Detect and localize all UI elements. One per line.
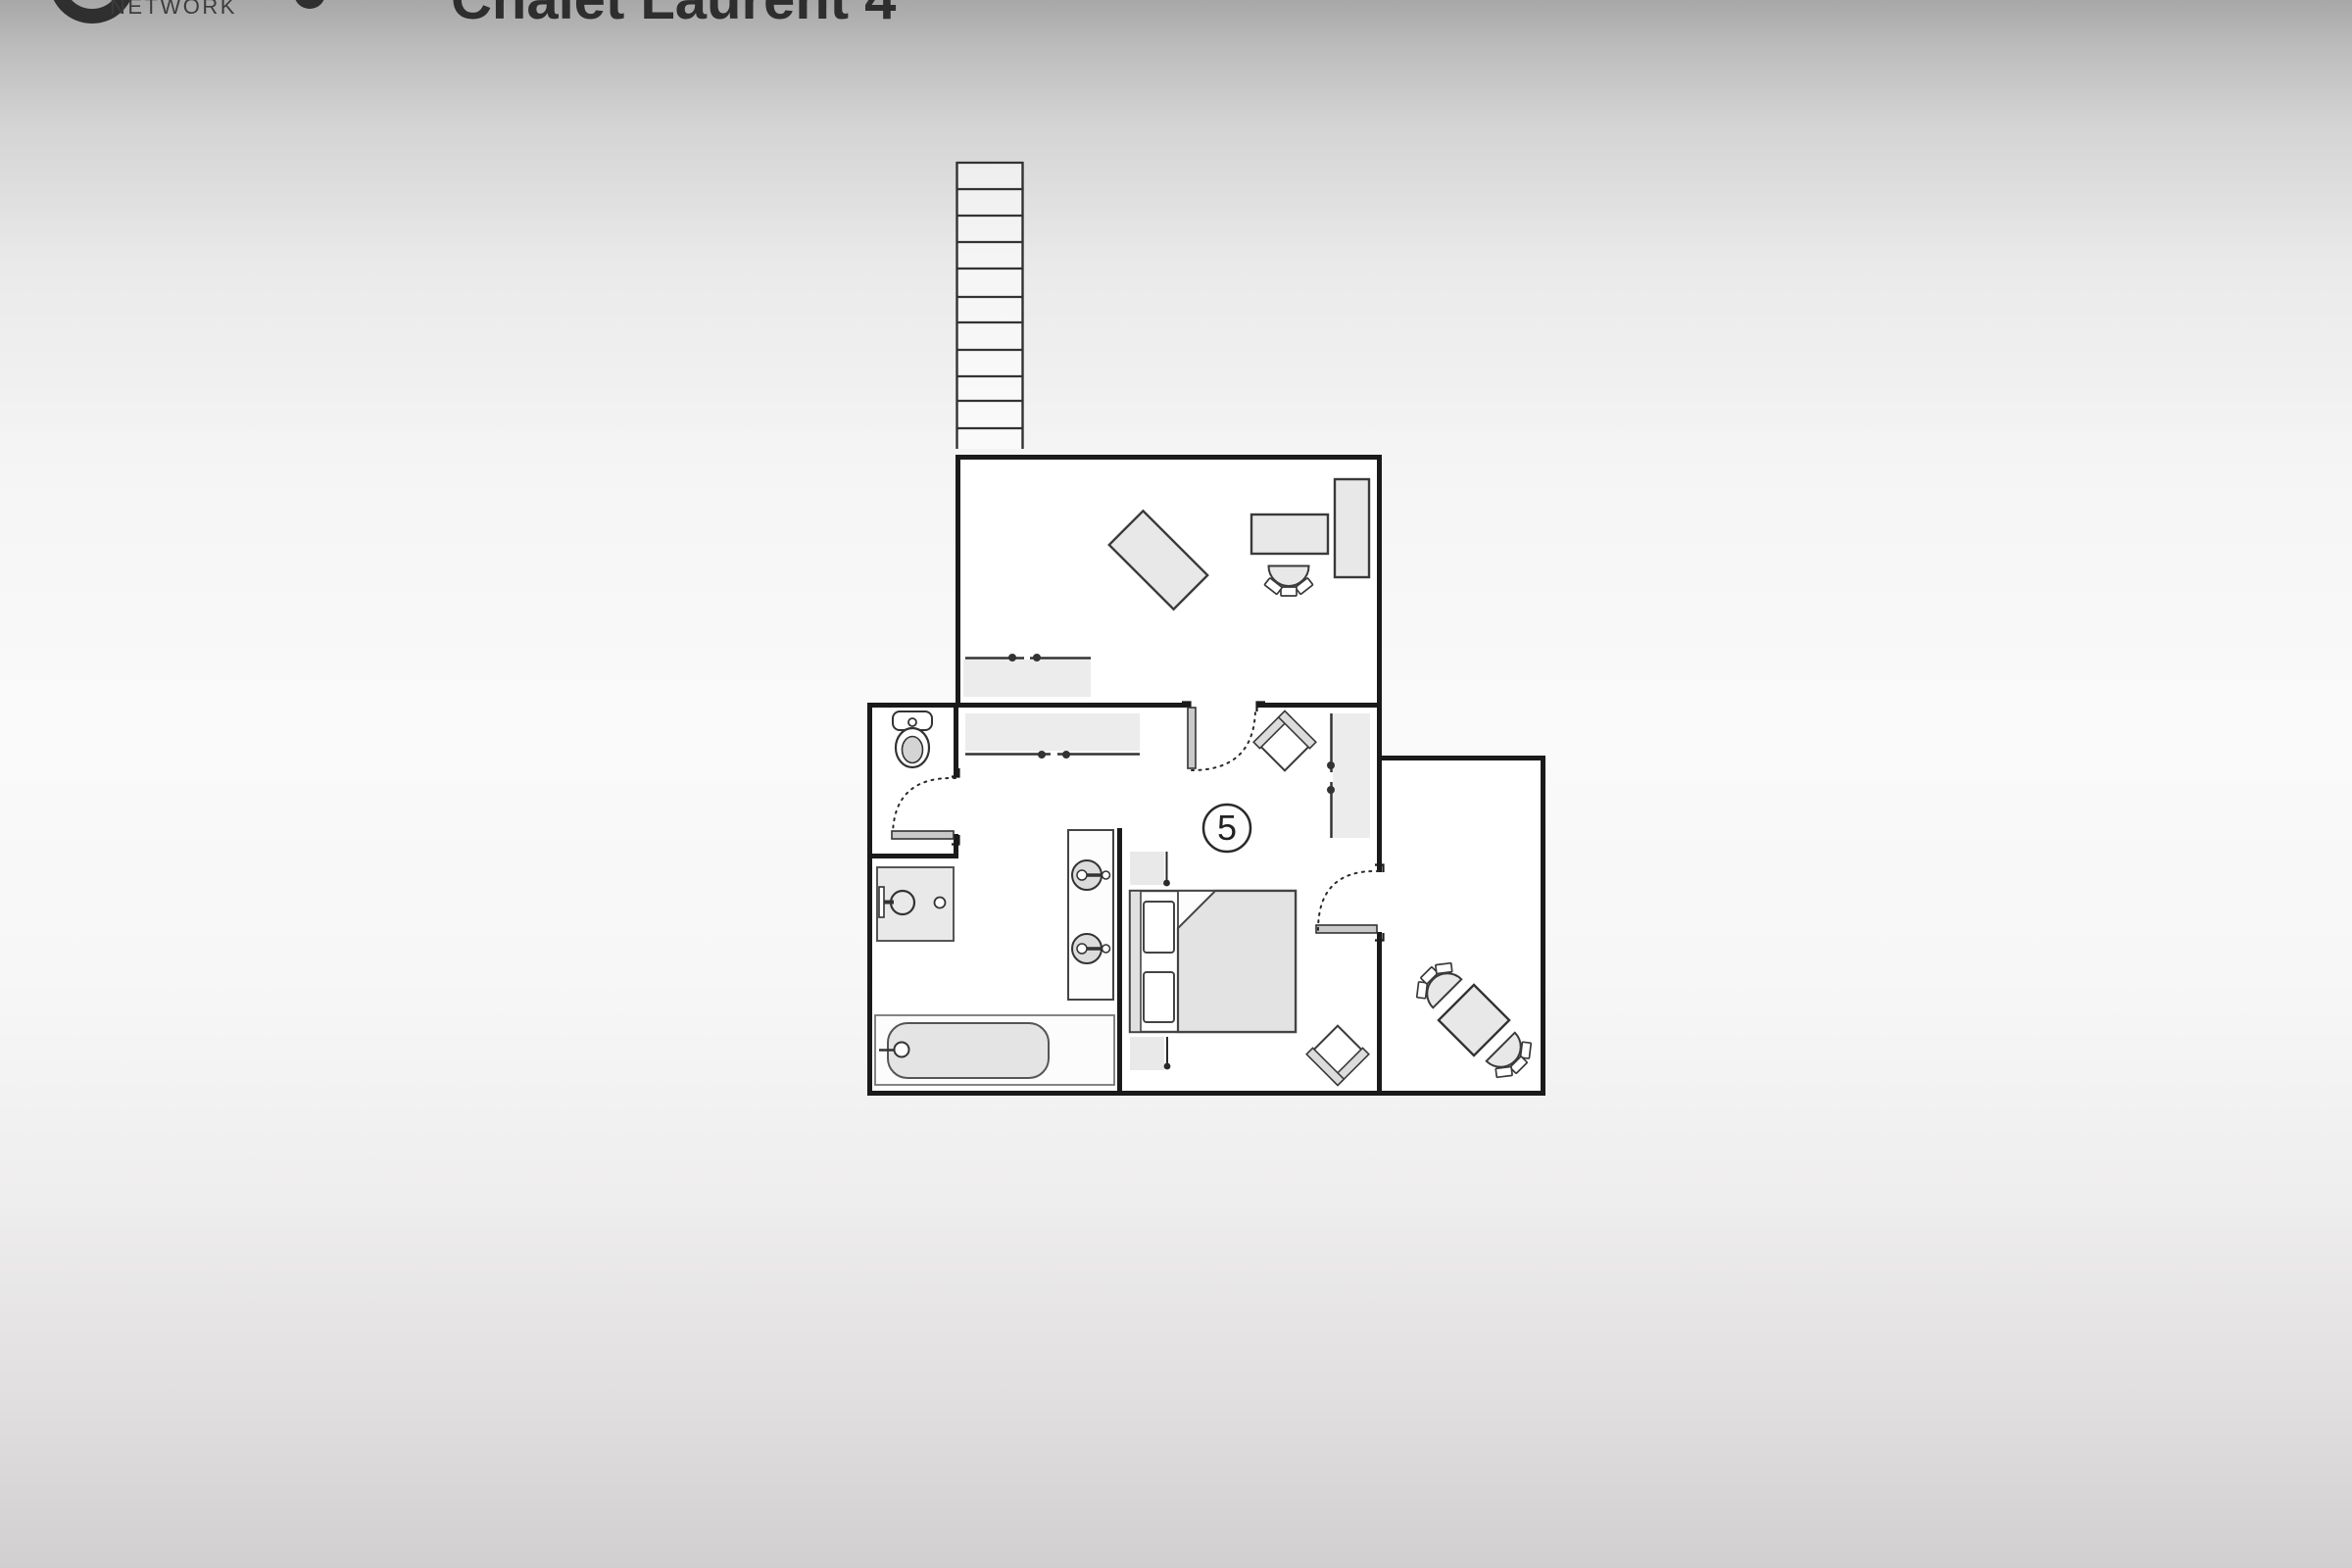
floor-plan-svg: 5 [0, 0, 2352, 1568]
sideboard-living [963, 654, 1091, 697]
room-number-label: 5 [1217, 808, 1237, 848]
toilet [893, 711, 932, 767]
knob-icon [1008, 654, 1016, 661]
staircase-floor [956, 162, 1023, 449]
reading-lamp-icon [1163, 880, 1170, 887]
double-bed [1130, 891, 1296, 1032]
knob-icon [1038, 751, 1046, 759]
room-number-badge: 5 [1203, 805, 1250, 852]
desk [1251, 514, 1328, 554]
living-door-leaf [1188, 708, 1196, 768]
washbasin [877, 867, 954, 941]
knob-icon [1062, 751, 1070, 759]
wc [893, 711, 932, 767]
knob-icon [1327, 761, 1335, 769]
wc-door-leaf [892, 831, 954, 839]
bathtub [875, 1015, 1114, 1085]
bedroom-door-leaf [1316, 925, 1377, 933]
desk-chair [1264, 566, 1313, 597]
knob-icon [1033, 654, 1041, 661]
double-sink-vanity [1068, 830, 1113, 1000]
pillow [1144, 972, 1174, 1022]
wardrobe [1335, 479, 1369, 577]
page: NETWORK Chalet Laurent 4 [0, 0, 2352, 1568]
nightstand-top [1130, 852, 1170, 886]
sideboard-vertical [1327, 713, 1370, 838]
headboard [1130, 891, 1141, 1032]
pillow [1144, 902, 1174, 953]
duvet [1178, 891, 1296, 1032]
reading-lamp-icon [1164, 1063, 1171, 1070]
knob-icon [1327, 786, 1335, 794]
